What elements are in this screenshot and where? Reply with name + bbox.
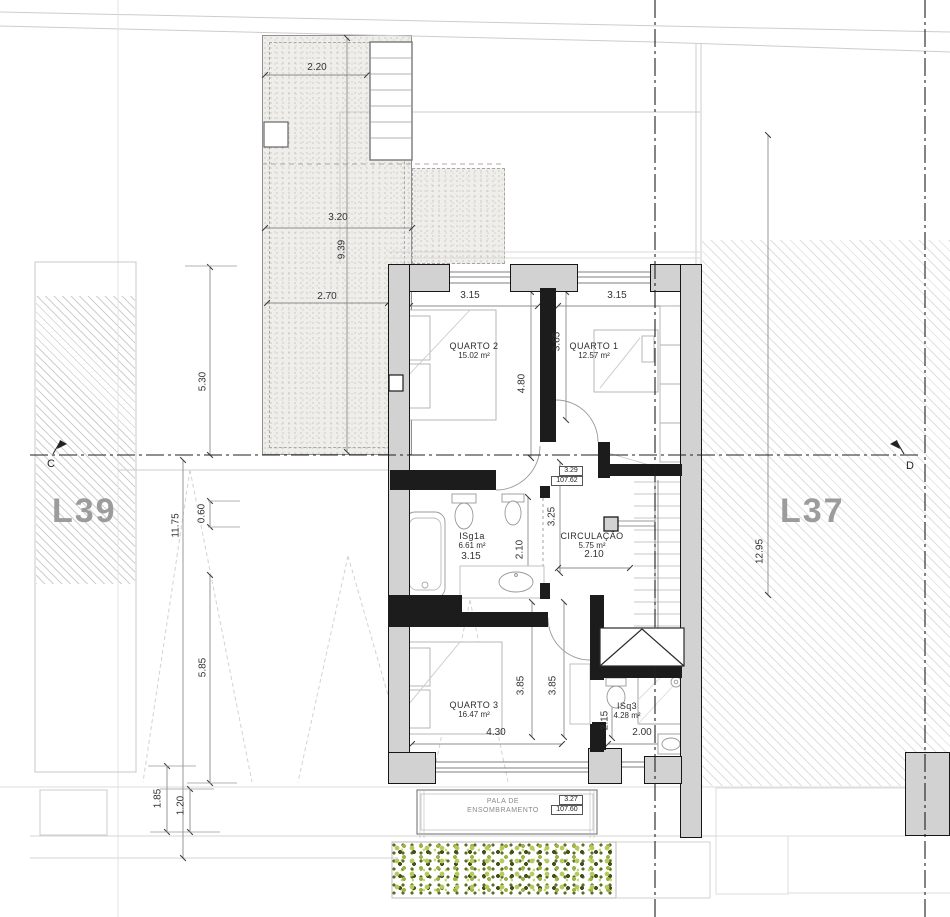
elevation-marker-upper: 3.29 107.62: [551, 466, 583, 486]
linework-overlay: [0, 0, 950, 917]
stair-void-triangle: [600, 628, 684, 666]
section-axes: [30, 0, 925, 917]
level-value: 3.29: [559, 466, 583, 476]
elevation-marker-lower: 3.27 107.60: [551, 795, 583, 815]
level-elevation: 107.60: [551, 805, 583, 815]
section-marker-c-icon: [53, 440, 67, 454]
section-marker-d-icon: [890, 440, 904, 454]
window-glazing: [436, 272, 650, 772]
level-elevation: 107.62: [551, 476, 583, 486]
section-letter-c: C: [47, 458, 55, 470]
level-value: 3.27: [559, 795, 583, 805]
floor-plan-canvas: L39 L37 C D QUARTO 2 15.02 m² QUARTO 1 1…: [0, 0, 950, 917]
section-letter-d: D: [906, 460, 914, 472]
left-wall-window: [389, 375, 403, 391]
